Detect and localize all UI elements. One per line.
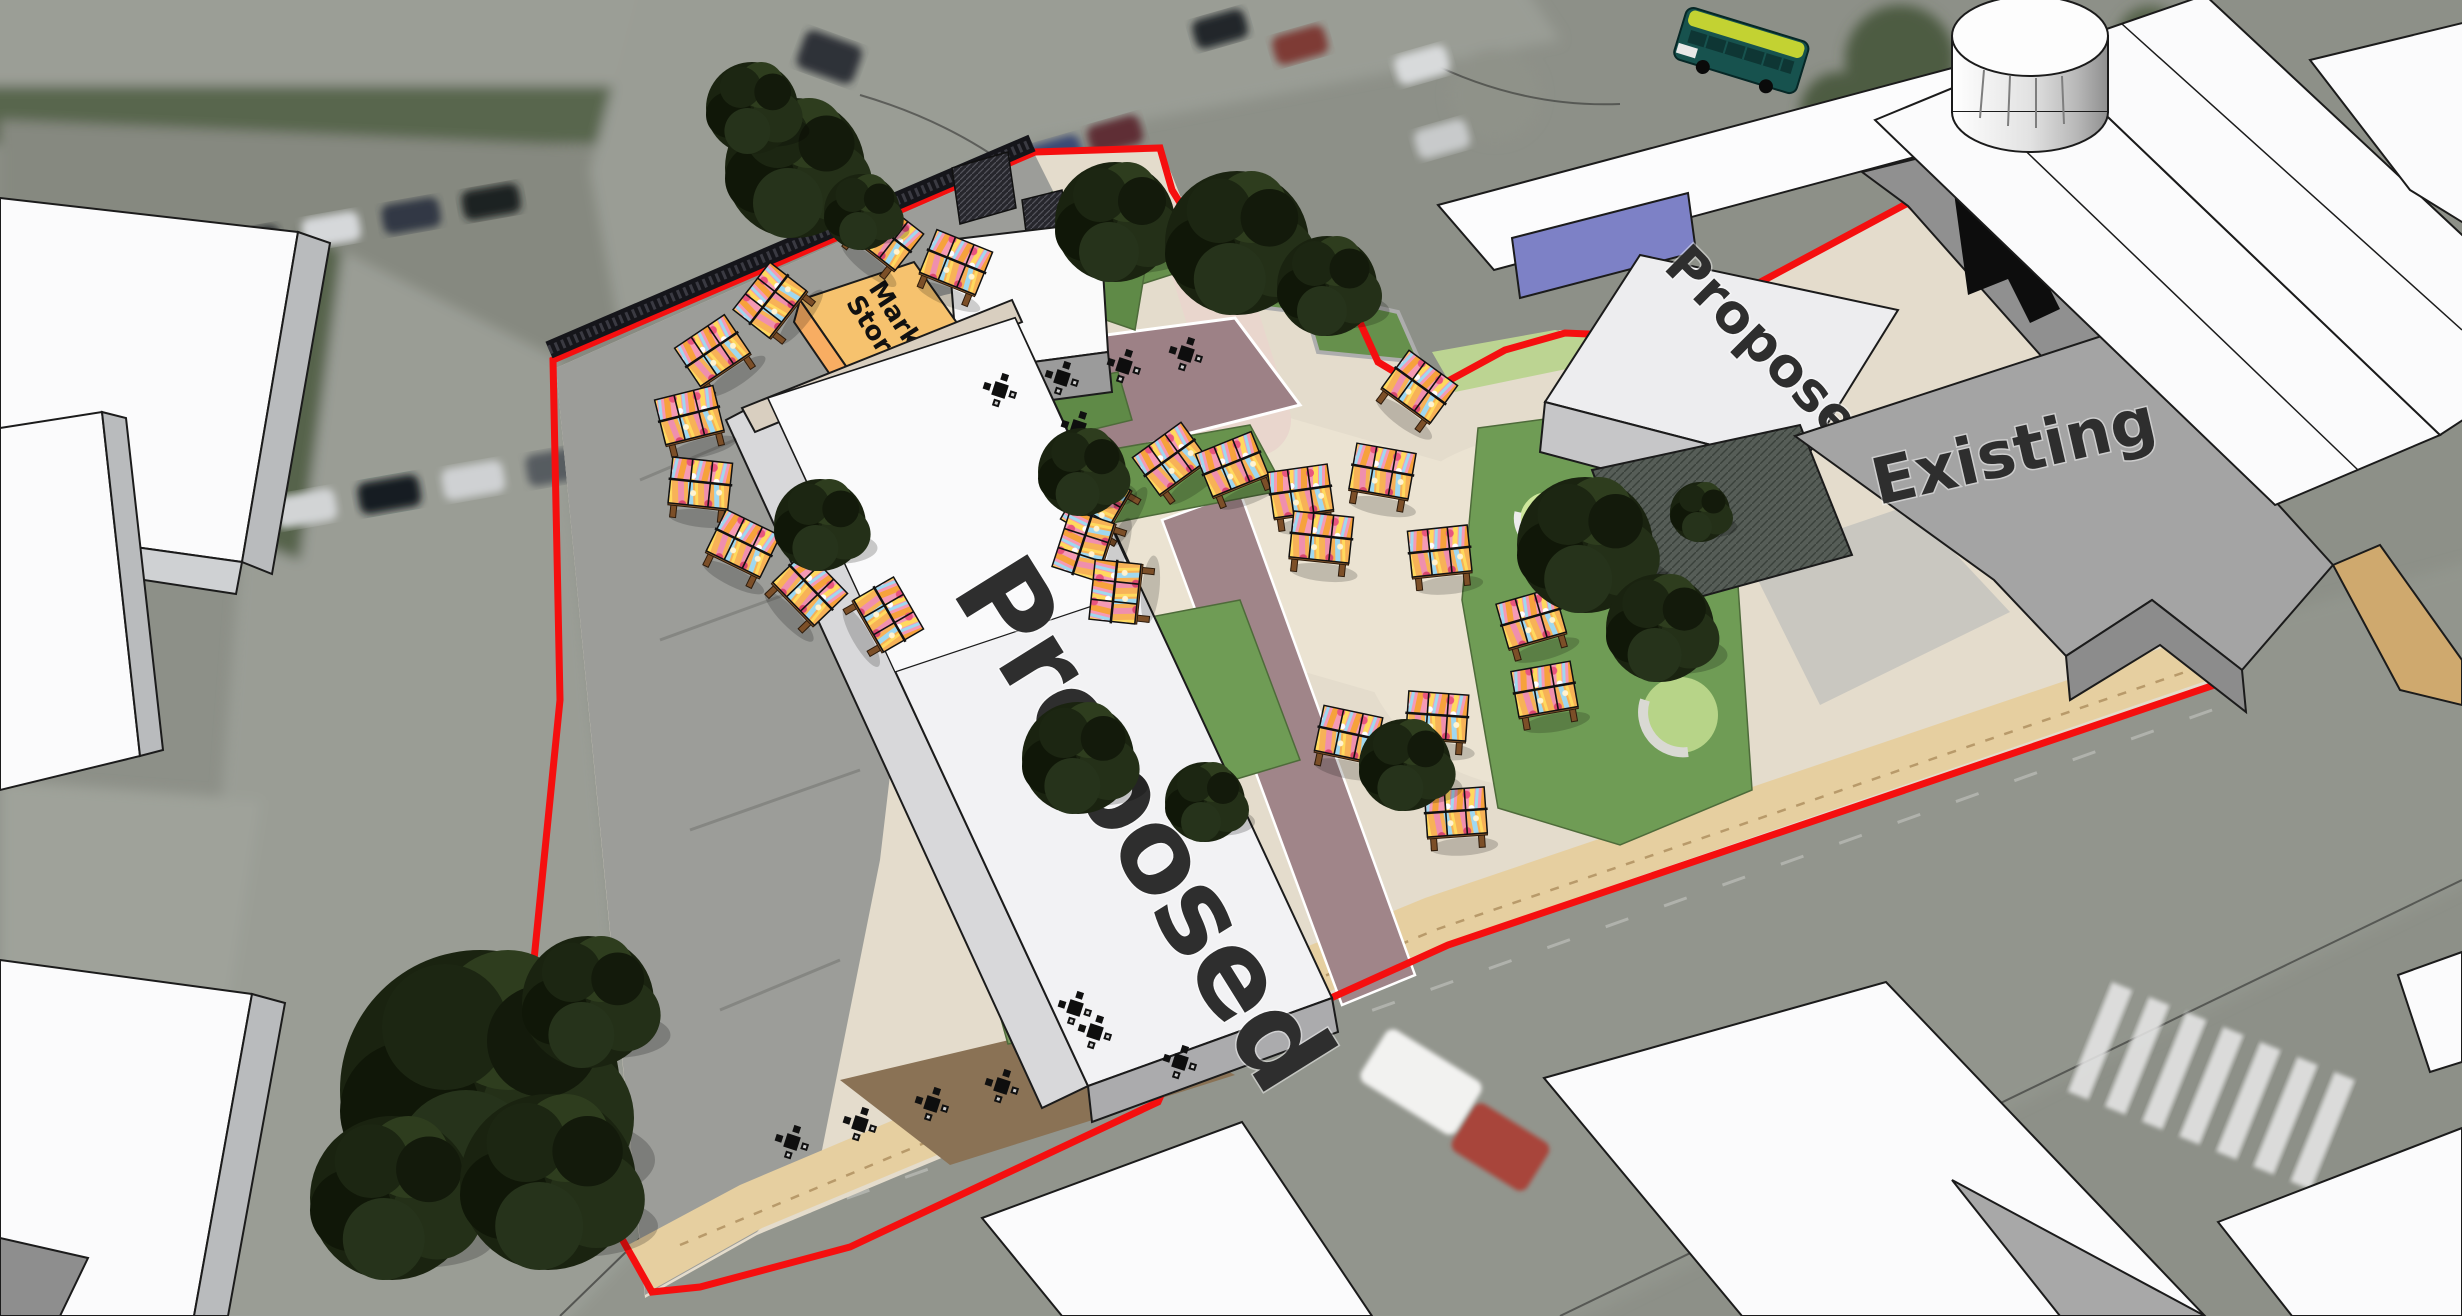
aerial-visualisation: Market Storage Proposed Proposed Existin… (0, 0, 2462, 1316)
cylindrical-tower (1952, 0, 2108, 152)
